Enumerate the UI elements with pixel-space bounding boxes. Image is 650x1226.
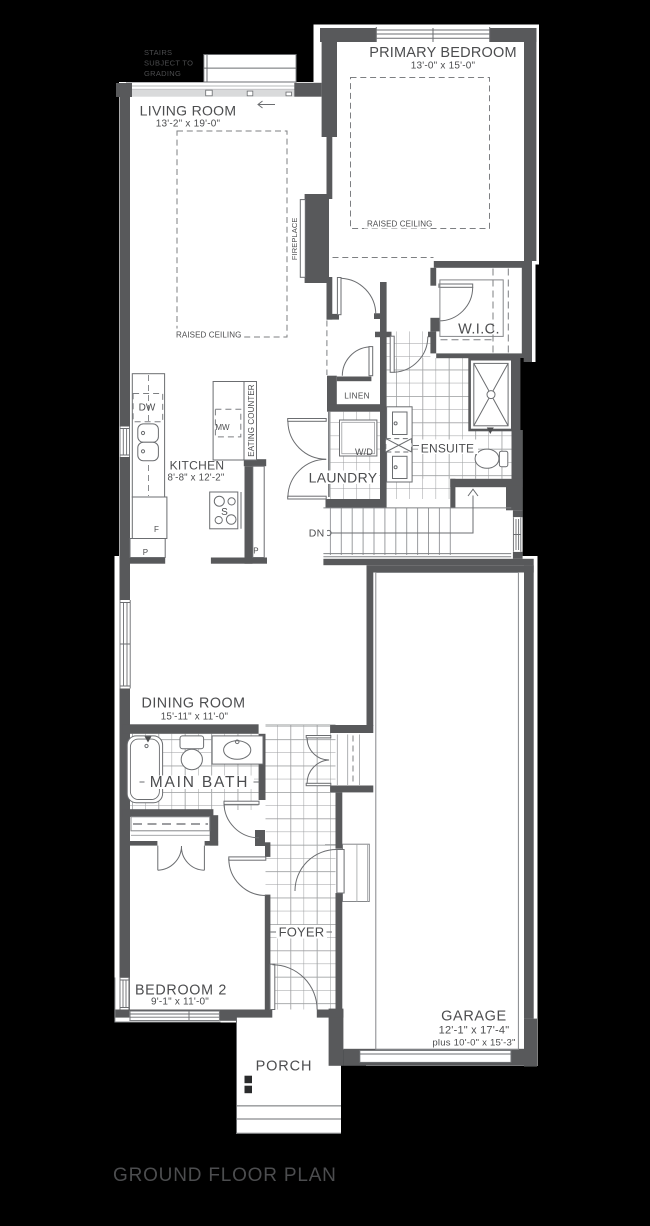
svg-text:STAIRS: STAIRS xyxy=(144,48,172,57)
svg-text:FOYER: FOYER xyxy=(279,925,325,940)
svg-text:GROUND FLOOR PLAN: GROUND FLOOR PLAN xyxy=(113,1165,337,1186)
svg-text:GRADING: GRADING xyxy=(144,69,181,78)
svg-text:W/D: W/D xyxy=(355,447,373,457)
svg-text:W.I.C.: W.I.C. xyxy=(458,322,500,338)
svg-text:S: S xyxy=(221,507,228,518)
svg-text:13'-0" x 15'-0": 13'-0" x 15'-0" xyxy=(411,61,476,72)
svg-text:PRIMARY BEDROOM: PRIMARY BEDROOM xyxy=(369,45,517,61)
svg-text:9'-1" x 11'-0": 9'-1" x 11'-0" xyxy=(151,997,209,1008)
svg-text:LAUNDRY: LAUNDRY xyxy=(309,470,378,486)
svg-text:12'-1" x 17'-4": 12'-1" x 17'-4" xyxy=(439,1025,510,1037)
svg-text:DW: DW xyxy=(139,402,156,413)
svg-text:MAIN BATH: MAIN BATH xyxy=(150,774,249,791)
svg-text:F: F xyxy=(154,525,159,534)
svg-text:PORCH: PORCH xyxy=(256,1059,313,1075)
svg-text:LIVING ROOM: LIVING ROOM xyxy=(140,103,237,119)
svg-text:DN: DN xyxy=(309,528,325,540)
svg-text:ENSUITE: ENSUITE xyxy=(421,442,474,456)
svg-text:RAISED CEILING: RAISED CEILING xyxy=(176,331,241,340)
svg-text:LINEN: LINEN xyxy=(344,392,370,401)
svg-text:FIREPLACE: FIREPLACE xyxy=(290,218,299,261)
svg-text:RAISED CEILING: RAISED CEILING xyxy=(367,220,432,229)
svg-text:P: P xyxy=(143,548,148,557)
svg-text:SUBJECT TO: SUBJECT TO xyxy=(144,59,193,68)
svg-text:GARAGE: GARAGE xyxy=(441,1009,507,1025)
svg-text:plus 10'-0" x 15'-3": plus 10'-0" x 15'-3" xyxy=(432,1038,515,1049)
svg-text:13'-2" x 19'-0": 13'-2" x 19'-0" xyxy=(156,119,221,130)
svg-text:EATING COUNTER: EATING COUNTER xyxy=(247,384,256,456)
svg-text:15'-11" x 11'-0": 15'-11" x 11'-0" xyxy=(161,712,229,723)
svg-text:8'-8" x 12'-2": 8'-8" x 12'-2" xyxy=(168,473,225,484)
svg-text:MW: MW xyxy=(215,423,230,432)
svg-text:KITCHEN: KITCHEN xyxy=(170,459,225,473)
svg-text:P: P xyxy=(253,547,258,556)
svg-text:DINING ROOM: DINING ROOM xyxy=(142,696,246,712)
